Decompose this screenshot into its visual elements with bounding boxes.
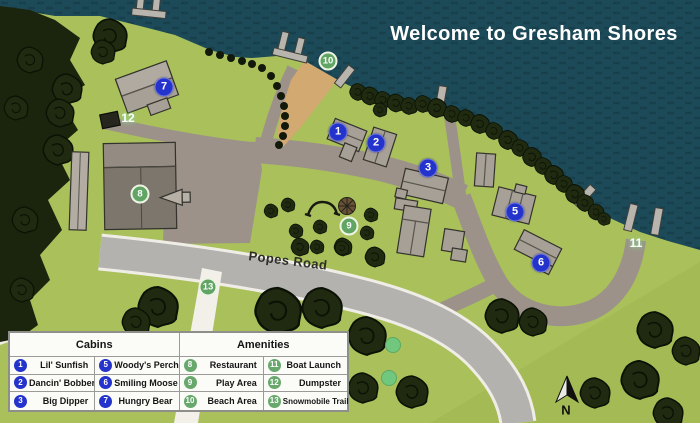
legend-marker-cabin-6: 6 — [99, 376, 112, 389]
legend-label: Smiling Moose — [114, 378, 178, 388]
marker-beach-area: 10 — [319, 52, 338, 71]
legend-label: Boat Launch — [283, 360, 341, 370]
dumpster — [100, 111, 121, 128]
marker-boat-launch: 11 — [630, 237, 643, 249]
legend-item-cabin-5: 5 Woody's Perch — [94, 357, 178, 375]
legend-label: Beach Area — [199, 396, 257, 406]
marker-cabin-1: 1 — [329, 123, 348, 142]
legend-item-snowmobile-trail: 13 Snowmobile Trail — [263, 392, 347, 410]
legend-item-cabin-3: 3 Big Dipper — [10, 392, 94, 410]
legend-marker-restaurant: 8 — [184, 359, 197, 372]
legend-label: Restaurant — [199, 360, 257, 370]
north-label: N — [561, 403, 570, 418]
legend-item-beach-area: 10 Beach Area — [179, 392, 263, 410]
marker-cabin-3: 3 — [419, 159, 438, 178]
legend-label: Dancin' Bobber — [29, 378, 95, 388]
legend-marker-boat-launch: 11 — [268, 359, 281, 372]
legend-item-boat-launch: 11 Boat Launch — [263, 357, 347, 375]
legend-item-play-area: 9 Play Area — [179, 375, 263, 393]
legend-item-dumpster: 12 Dumpster — [263, 375, 347, 393]
legend-item-cabin-1: 1 Lil' Sunfish — [10, 357, 94, 375]
marker-restaurant: 8 — [131, 185, 150, 204]
legend-label: Snowmobile Trail — [283, 397, 349, 406]
legend-marker-cabin-3: 3 — [14, 395, 27, 408]
legend-label: Lil' Sunfish — [29, 360, 88, 370]
marker-cabin-2: 2 — [367, 134, 386, 153]
marker-cabin-6: 6 — [532, 254, 551, 273]
legend-label: Dumpster — [283, 378, 341, 388]
mid-building-3 — [451, 248, 468, 262]
legend-marker-cabin-7: 7 — [99, 395, 112, 408]
marker-cabin-5: 5 — [506, 203, 525, 222]
marker-play-area: 9 — [340, 217, 359, 236]
legend-label: Hungry Bear — [114, 396, 172, 406]
legend-marker-play-area: 9 — [184, 376, 197, 389]
map-legend: Cabins Amenities 1 Lil' Sunfish 5 Woody'… — [8, 331, 349, 412]
legend-label: Big Dipper — [29, 396, 88, 406]
storage-building — [69, 152, 89, 231]
legend-item-restaurant: 8 Restaurant — [179, 357, 263, 375]
legend-marker-cabin-1: 1 — [14, 359, 27, 372]
merry-go-round-icon — [339, 198, 356, 215]
marker-snowmobile-trail: 13 — [199, 278, 218, 297]
legend-item-cabin-2: 2 Dancin' Bobber — [10, 375, 94, 393]
legend-header-cabins: Cabins — [10, 333, 179, 357]
legend-marker-beach-area: 10 — [184, 395, 197, 408]
legend-label: Play Area — [199, 378, 257, 388]
legend-marker-cabin-5: 5 — [99, 359, 112, 372]
legend-marker-dumpster: 12 — [268, 376, 281, 389]
legend-item-cabin-7: 7 Hungry Bear — [94, 392, 178, 410]
shore-building — [474, 153, 495, 187]
marker-dumpster: 12 — [121, 112, 134, 124]
resort-map: Welcome to Gresham Shores Popes Road 1 2… — [0, 0, 700, 423]
legend-item-cabin-6: 6 Smiling Moose — [94, 375, 178, 393]
legend-marker-cabin-2: 2 — [14, 376, 27, 389]
legend-marker-snowmobile-trail: 13 — [268, 395, 281, 408]
legend-label: Woody's Perch — [114, 360, 179, 370]
legend-header-amenities: Amenities — [179, 333, 348, 357]
page-title: Welcome to Gresham Shores — [384, 23, 684, 46]
marker-cabin-7: 7 — [155, 78, 174, 97]
